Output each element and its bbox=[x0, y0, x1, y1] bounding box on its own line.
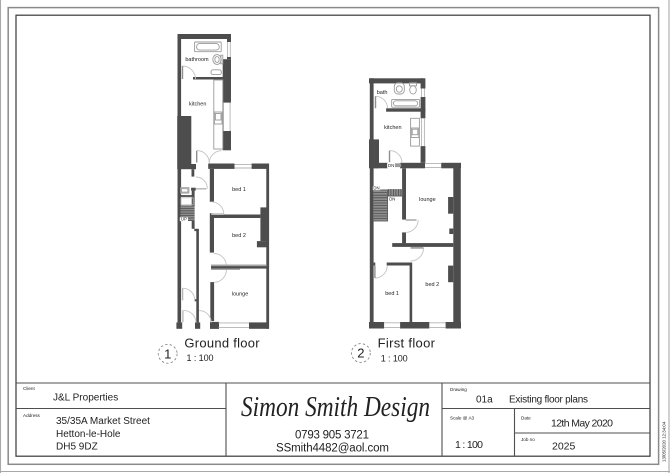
svg-text:Simon Smith Design: Simon Smith Design bbox=[241, 392, 430, 423]
svg-text:Existing floor plans: Existing floor plans bbox=[509, 395, 588, 406]
svg-text:UP: UP bbox=[181, 217, 187, 222]
svg-text:13/05/2020 12:34:04: 13/05/2020 12:34:04 bbox=[662, 421, 667, 462]
svg-text:1 : 100: 1 : 100 bbox=[455, 439, 483, 451]
svg-text:DN: DN bbox=[388, 163, 394, 168]
svg-text:bed 2: bed 2 bbox=[425, 282, 439, 288]
svg-text:kitchen: kitchen bbox=[189, 101, 206, 107]
svg-text:Address: Address bbox=[23, 413, 41, 418]
svg-text:Date: Date bbox=[521, 416, 531, 421]
svg-text:35/35A Market Street: 35/35A Market Street bbox=[56, 416, 150, 427]
svg-text:1 : 100: 1 : 100 bbox=[381, 353, 408, 363]
svg-text:DN: DN bbox=[373, 186, 379, 191]
svg-text:SSmith4482@aol.com: SSmith4482@aol.com bbox=[276, 443, 389, 455]
svg-text:01a: 01a bbox=[476, 395, 493, 406]
svg-text:Client: Client bbox=[23, 386, 35, 391]
svg-text:Drawing: Drawing bbox=[450, 387, 467, 392]
svg-text:Scale @ A3: Scale @ A3 bbox=[450, 416, 475, 421]
svg-text:2: 2 bbox=[357, 346, 364, 361]
svg-text:J&L Properties: J&L Properties bbox=[53, 393, 118, 404]
svg-text:bed 1: bed 1 bbox=[232, 187, 246, 193]
svg-text:bath: bath bbox=[377, 90, 388, 96]
svg-text:DH5 9DZ: DH5 9DZ bbox=[56, 442, 98, 453]
svg-text:Ground floor: Ground floor bbox=[184, 336, 260, 351]
svg-text:12th May 2020: 12th May 2020 bbox=[551, 418, 613, 430]
svg-text:lounge: lounge bbox=[232, 292, 249, 298]
svg-text:0793 905 3721: 0793 905 3721 bbox=[295, 430, 369, 442]
svg-text:2025: 2025 bbox=[552, 441, 576, 453]
svg-text:bed 2: bed 2 bbox=[232, 233, 246, 239]
svg-text:bed 1: bed 1 bbox=[385, 291, 399, 297]
svg-text:bathroom: bathroom bbox=[185, 57, 209, 63]
svg-text:First floor: First floor bbox=[378, 336, 436, 351]
svg-text:1: 1 bbox=[164, 346, 171, 361]
svg-text:Hetton-le-Hole: Hetton-le-Hole bbox=[56, 429, 121, 440]
svg-text:1 : 100: 1 : 100 bbox=[187, 353, 214, 363]
svg-text:kitchen: kitchen bbox=[384, 125, 401, 131]
svg-text:lounge: lounge bbox=[419, 197, 436, 203]
svg-text:DN: DN bbox=[389, 197, 395, 202]
svg-text:Job no: Job no bbox=[521, 437, 535, 442]
